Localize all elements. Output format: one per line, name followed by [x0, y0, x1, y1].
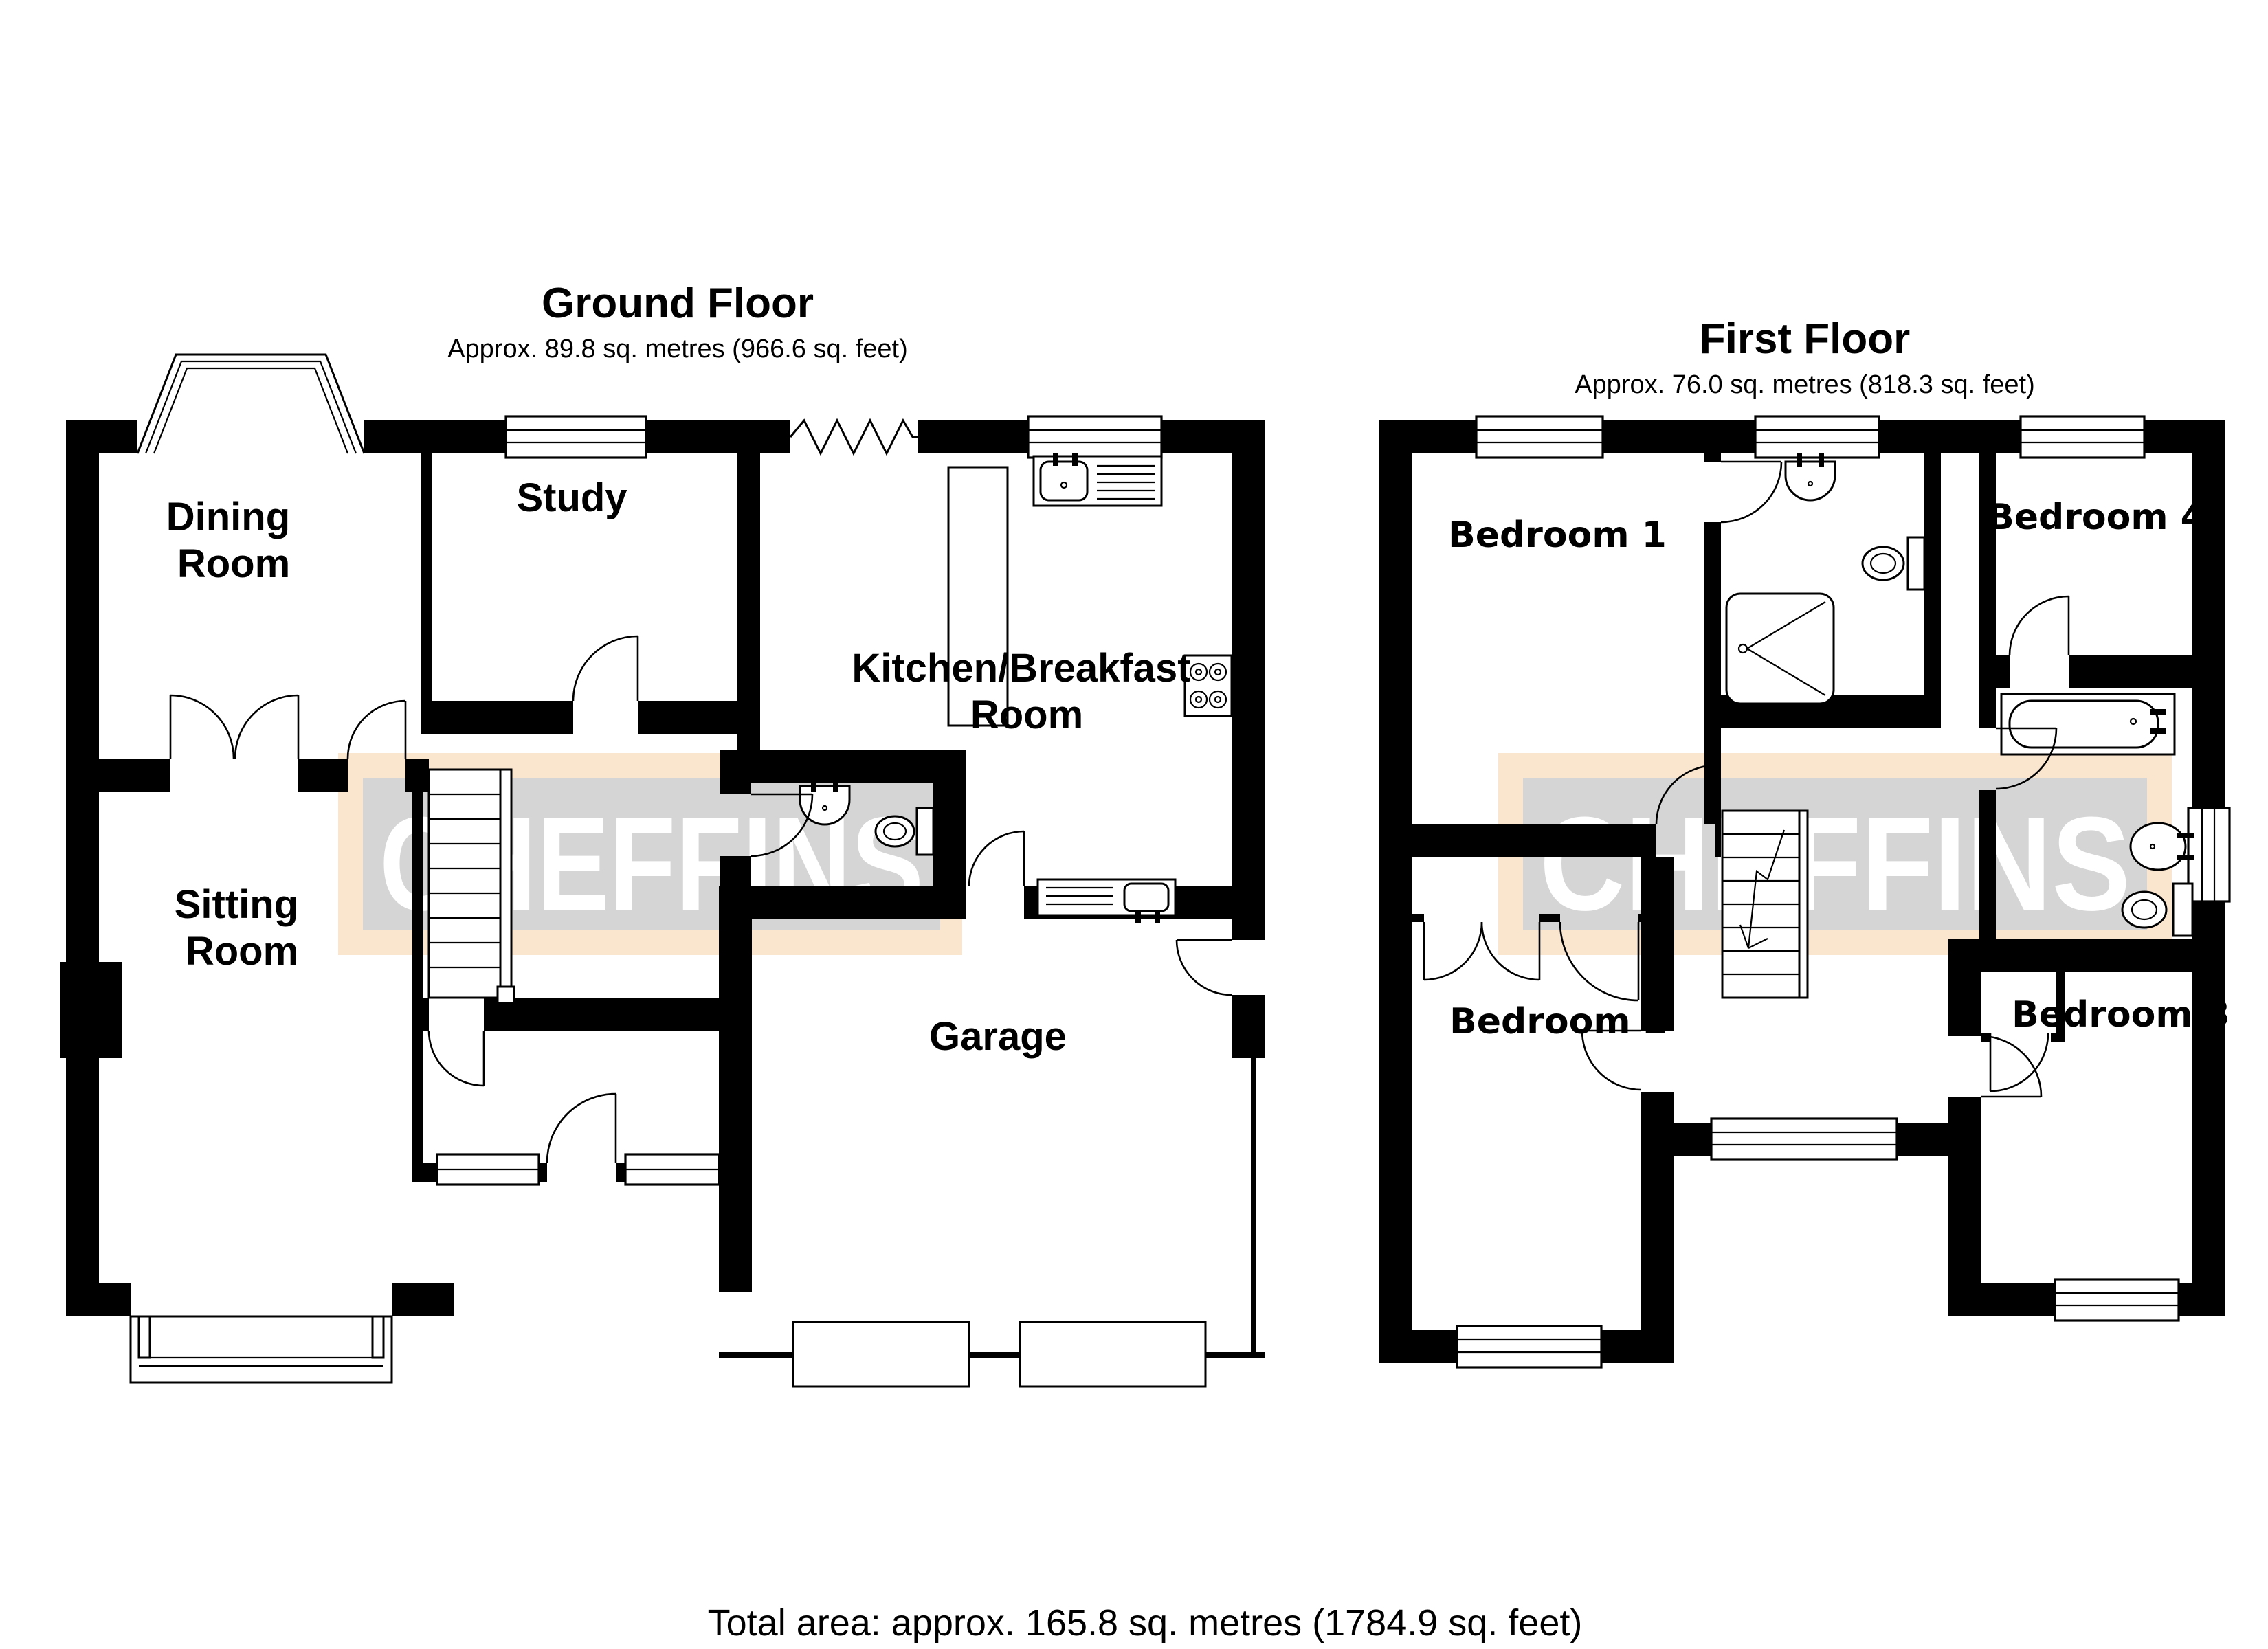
first-floor-area: Approx. 76.0 sq. metres (818.3 sq. feet)	[1575, 370, 2035, 399]
ground-floor-area: Approx. 89.8 sq. metres (966.6 sq. feet)	[447, 335, 908, 363]
stairs	[429, 770, 514, 1003]
chimney-breast	[60, 962, 122, 1058]
window	[1711, 1119, 1897, 1160]
room-label-sitting: Sitting Room	[175, 882, 310, 974]
window	[1457, 1326, 1601, 1367]
ground-floor-title: Ground Floor	[542, 280, 814, 327]
bay-window	[131, 1316, 392, 1382]
window	[1028, 416, 1161, 458]
window	[625, 1154, 719, 1185]
room-label-kitchen: Kitchen/Breakfast Room	[852, 646, 1201, 737]
window	[2021, 416, 2144, 458]
toilet-icon	[1863, 537, 1924, 590]
room-label-study: Study	[516, 475, 627, 520]
garage-door	[793, 1322, 969, 1387]
floorplan-page: CHEFFINS CHEFFINS	[0, 0, 2268, 1649]
window	[437, 1154, 539, 1185]
first-floor-title: First Floor	[1700, 315, 1911, 363]
total-area: Total area: approx. 165.8 sq. metres (17…	[708, 1602, 1583, 1644]
room-label-bedroom4: Bedroom 4	[1987, 497, 2205, 538]
room-label-bedroom1: Bedroom 1	[1448, 515, 1667, 556]
stairs	[1722, 811, 1808, 998]
window	[1755, 416, 1879, 458]
window	[1476, 416, 1603, 458]
sink-icon	[1034, 453, 1161, 506]
bath-icon	[2001, 694, 2175, 754]
garage-door	[1020, 1322, 1205, 1387]
room-label-bedroom3: Bedroom 3	[2012, 994, 2230, 1035]
room-label-garage: Garage	[929, 1014, 1067, 1059]
basin-icon	[1786, 453, 1835, 500]
basin-icon	[2131, 823, 2194, 870]
window	[506, 416, 646, 458]
room-label-bedroom2: Bedroom 2	[1449, 1001, 1668, 1042]
bay-window	[137, 355, 364, 453]
window	[2055, 1279, 2179, 1321]
shower-icon	[1726, 594, 1834, 704]
break-line-icon	[790, 420, 918, 453]
room-label-dining: Dining Room	[166, 495, 302, 586]
watermark-text: CHEFFINS	[1539, 789, 2131, 939]
window	[2188, 808, 2230, 901]
floorplan-svg: CHEFFINS CHEFFINS	[0, 0, 2268, 1649]
